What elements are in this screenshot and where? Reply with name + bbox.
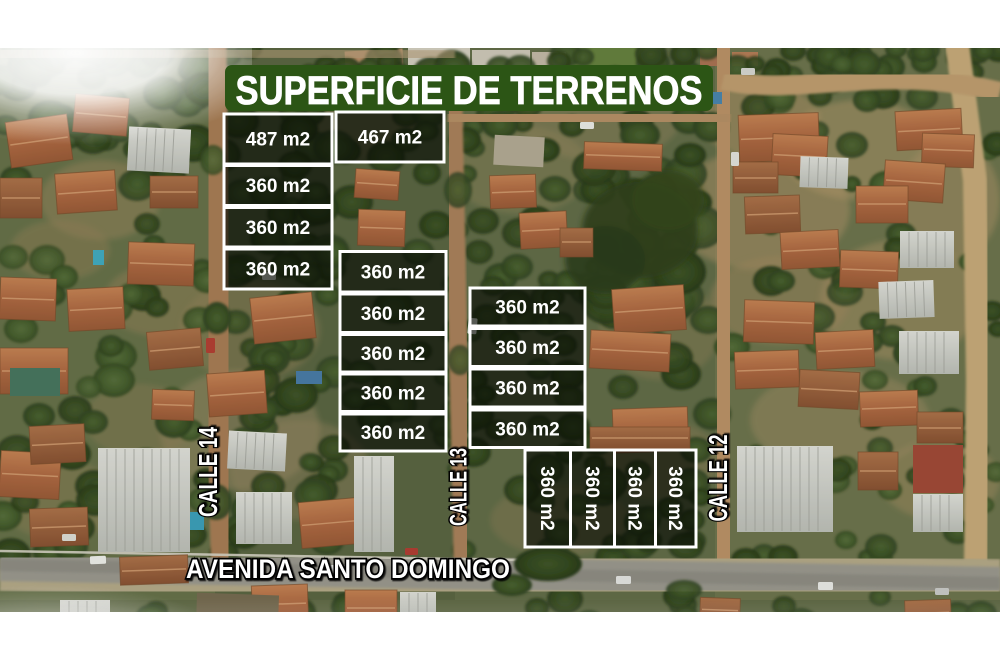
svg-text:CALLE 14: CALLE 14 [193, 427, 223, 517]
svg-text:360 m2: 360 m2 [536, 466, 557, 530]
svg-text:360 m2: 360 m2 [664, 466, 685, 530]
svg-text:360 m2: 360 m2 [361, 304, 425, 325]
svg-text:360 m2: 360 m2 [246, 260, 310, 281]
svg-text:360 m2: 360 m2 [495, 298, 559, 319]
svg-text:CALLE 13: CALLE 13 [445, 448, 472, 526]
svg-text:487 m2: 487 m2 [246, 130, 310, 151]
svg-text:360 m2: 360 m2 [246, 218, 310, 239]
svg-text:360 m2: 360 m2 [361, 383, 425, 404]
svg-text:360 m2: 360 m2 [361, 423, 425, 444]
svg-text:SUPERFICIE DE TERRENOS: SUPERFICIE DE TERRENOS [236, 69, 703, 113]
svg-text:360 m2: 360 m2 [495, 419, 559, 440]
svg-text:360 m2: 360 m2 [495, 379, 559, 400]
svg-text:360 m2: 360 m2 [581, 466, 602, 530]
svg-text:360 m2: 360 m2 [361, 344, 425, 365]
svg-text:360 m2: 360 m2 [246, 176, 310, 197]
svg-text:CALLE 12: CALLE 12 [703, 435, 733, 522]
svg-text:AVENIDA SANTO DOMINGO: AVENIDA SANTO DOMINGO [186, 554, 510, 584]
svg-text:360 m2: 360 m2 [495, 338, 559, 359]
svg-text:360 m2: 360 m2 [623, 466, 644, 530]
svg-text:467 m2: 467 m2 [358, 128, 422, 149]
svg-text:360 m2: 360 m2 [361, 262, 425, 283]
